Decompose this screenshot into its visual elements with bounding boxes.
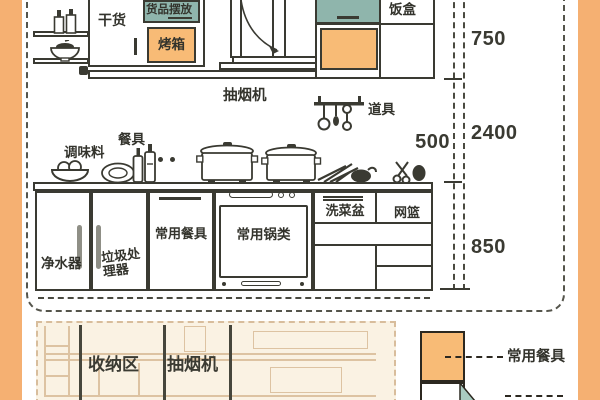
- dimension-850: 850: [471, 236, 506, 259]
- stove-grate-bar: [229, 191, 273, 198]
- label-seasoning: 调味料: [64, 146, 105, 160]
- sink-unit-hline-2: [313, 244, 433, 246]
- sketch-box: [253, 331, 368, 349]
- bowl-icon: [48, 40, 82, 62]
- dimension-500: 500: [404, 131, 450, 154]
- label-water-purifier: 净水器: [41, 257, 82, 271]
- frame-left: [0, 0, 22, 400]
- dimension-line-outer: [463, 0, 465, 290]
- countertop: [33, 182, 433, 191]
- label-oven: 烤箱: [158, 38, 185, 52]
- stove-knob-1: [278, 192, 284, 198]
- sink-unit-divider-bottom: [375, 246, 377, 291]
- pots-cabinet-foot-left: [222, 282, 226, 286]
- divider-dark-1: [79, 325, 82, 400]
- sink-unit-hline-1: [313, 222, 433, 224]
- cabinet-handle-line: [134, 38, 137, 55]
- upper-right-divider: [379, 0, 381, 78]
- tableware-cabinet-handle: [159, 197, 201, 200]
- sketch-line: [44, 326, 46, 396]
- dimension-tick-floor: [440, 288, 470, 290]
- sketch-line: [44, 395, 376, 397]
- sketch-box: [184, 326, 206, 352]
- label-basket: 网篮: [382, 206, 432, 220]
- dimension-line-inner: [453, 0, 455, 290]
- vegetables-icon: [316, 158, 378, 184]
- sketch-line: [44, 375, 68, 377]
- sink-drawer-handle: [323, 196, 363, 201]
- label-common-tableware: 常用餐具: [149, 227, 213, 241]
- stove-knob-2: [289, 192, 295, 198]
- sketch-line: [68, 326, 70, 396]
- base-cabinet-common-tableware: [148, 191, 214, 291]
- label-lunch-box: 饭盒: [389, 3, 416, 17]
- goods-display-underline: [168, 17, 192, 19]
- legend-leader-line-partial: [505, 395, 563, 397]
- floor-kick-dashed-line: [38, 297, 430, 299]
- counter-dot-2: [170, 157, 175, 162]
- dimension-tick-upper: [444, 78, 462, 80]
- sketch-box: [270, 367, 342, 393]
- sink-unit-divider-top: [375, 191, 377, 223]
- door-handle-right: [96, 225, 101, 269]
- label-garbage-disposal: 垃圾处 理器: [100, 247, 142, 279]
- pots-cabinet-vent: [241, 281, 281, 286]
- dimension-750: 750: [471, 28, 506, 51]
- divider-dark-3: [229, 325, 232, 400]
- label-range-hood: 抽烟机: [223, 89, 267, 104]
- kitchen-dimension-infographic: 干货 货品摆放 烤箱 饭盒 抽烟机: [0, 0, 600, 400]
- label-dry-goods: 干货: [98, 13, 126, 28]
- legend-leader-line: [445, 356, 503, 358]
- legend-teal-corner: [459, 383, 477, 400]
- label-tools: 道具: [368, 103, 395, 117]
- sketch-line: [44, 345, 68, 347]
- bottles-icon: [50, 8, 80, 34]
- label-goods-display: 货品摆放: [146, 4, 192, 16]
- dimension-2400: 2400: [471, 122, 518, 145]
- pots-icon: [196, 142, 324, 184]
- upper-right-orange-box: [320, 28, 378, 70]
- fruit-bowl-icon: [50, 160, 90, 184]
- legend-label-common-tableware: 常用餐具: [507, 350, 565, 365]
- dimension-tick-counter: [444, 181, 462, 183]
- divider-dark-2: [163, 325, 166, 400]
- label-sink: 洗菜盆: [317, 204, 373, 218]
- label-range-hood-bottom: 抽烟机: [167, 356, 218, 374]
- kitchen-shears-icon: [392, 160, 428, 184]
- frame-right: [578, 0, 600, 400]
- label-common-pots: 常用锅类: [226, 228, 301, 242]
- hanging-utensils-icon: [314, 96, 366, 140]
- plate-and-bottles-icon: [100, 144, 158, 184]
- faded-elevation-panel: 收纳区 抽烟机: [36, 321, 396, 400]
- pots-cabinet-foot-right: [300, 282, 304, 286]
- label-storage-area: 收纳区: [88, 356, 139, 374]
- counter-dot-1: [158, 157, 163, 162]
- rail-hinge-knob: [79, 66, 88, 75]
- upper-right-shelf-line: [317, 23, 433, 25]
- lunchbox-teal-section: [317, 0, 379, 24]
- airflow-arrow-icon: [233, 0, 285, 56]
- teal-section-handle: [337, 16, 359, 19]
- sink-unit-hline-right: [377, 265, 433, 267]
- base-cabinet-water-purifier: [35, 191, 91, 291]
